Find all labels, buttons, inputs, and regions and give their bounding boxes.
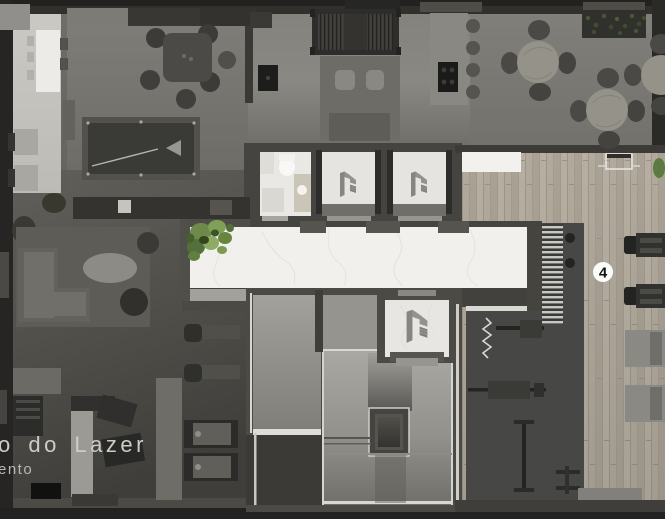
svg-text:ento: ento xyxy=(0,461,33,478)
svg-text:o do Lazer: o do Lazer xyxy=(0,432,147,457)
svg-text:4: 4 xyxy=(599,265,608,282)
